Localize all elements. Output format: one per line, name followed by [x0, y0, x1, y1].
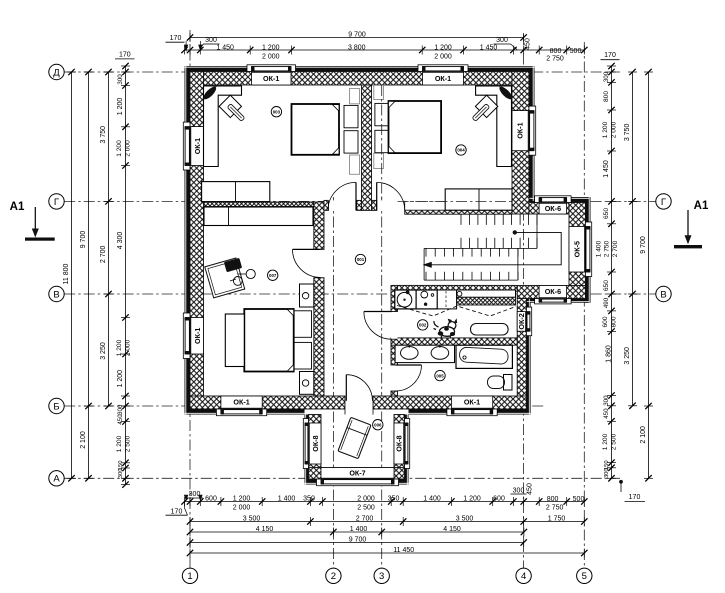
svg-text:4 150: 4 150 — [256, 526, 274, 533]
svg-text:4 300: 4 300 — [117, 232, 124, 250]
svg-text:1 450: 1 450 — [603, 160, 610, 178]
svg-text:650: 650 — [603, 280, 610, 291]
svg-text:2 750: 2 750 — [546, 56, 564, 63]
svg-text:А: А — [53, 474, 60, 485]
svg-text:2 700: 2 700 — [100, 245, 107, 263]
svg-text:2 000: 2 000 — [124, 339, 131, 356]
svg-text:3 750: 3 750 — [100, 126, 107, 144]
svg-text:007: 007 — [269, 273, 277, 278]
svg-text:2 000: 2 000 — [357, 496, 375, 503]
svg-text:170: 170 — [604, 52, 616, 59]
svg-text:500: 500 — [573, 496, 585, 503]
svg-text:600: 600 — [205, 496, 217, 503]
svg-text:ОК-1: ОК-1 — [516, 122, 525, 138]
svg-text:300: 300 — [604, 468, 610, 478]
svg-text:2 100: 2 100 — [640, 426, 647, 444]
svg-text:350: 350 — [388, 496, 400, 503]
svg-text:170: 170 — [119, 51, 131, 58]
svg-text:1 400: 1 400 — [595, 240, 602, 257]
svg-text:450: 450 — [117, 414, 124, 425]
svg-text:170: 170 — [170, 35, 182, 42]
svg-text:2 750: 2 750 — [546, 504, 564, 511]
svg-text:ОК-6: ОК-6 — [545, 287, 561, 296]
svg-text:Г: Г — [54, 197, 59, 208]
svg-text:2: 2 — [331, 571, 336, 582]
svg-text:9 700: 9 700 — [349, 537, 367, 544]
svg-text:А1: А1 — [694, 200, 709, 212]
svg-text:Д: Д — [53, 67, 60, 78]
svg-text:3: 3 — [379, 571, 384, 582]
svg-text:9 700: 9 700 — [348, 32, 366, 39]
svg-text:ОК-1: ОК-1 — [193, 328, 202, 344]
svg-text:300: 300 — [603, 395, 610, 406]
svg-text:1 400: 1 400 — [350, 526, 368, 533]
svg-text:2 000: 2 000 — [610, 121, 617, 138]
svg-text:3 750: 3 750 — [624, 124, 631, 142]
svg-text:4 150: 4 150 — [443, 526, 461, 533]
svg-text:11 800: 11 800 — [63, 263, 70, 284]
svg-text:1 200: 1 200 — [602, 121, 609, 138]
svg-text:А1: А1 — [10, 201, 25, 213]
svg-text:5: 5 — [582, 571, 587, 582]
svg-text:1 860: 1 860 — [606, 345, 613, 363]
svg-text:В: В — [660, 289, 666, 300]
svg-text:300: 300 — [117, 74, 124, 85]
svg-text:2 750: 2 750 — [604, 240, 611, 257]
svg-text:1 200: 1 200 — [116, 339, 123, 356]
svg-text:300: 300 — [496, 37, 508, 44]
svg-text:800: 800 — [550, 48, 562, 55]
svg-text:4: 4 — [521, 571, 526, 582]
svg-text:Г: Г — [661, 197, 666, 208]
svg-text:2 700: 2 700 — [612, 240, 619, 257]
svg-text:600: 600 — [602, 316, 609, 327]
svg-text:004: 004 — [457, 148, 465, 153]
svg-text:800: 800 — [603, 91, 610, 102]
svg-text:1 200: 1 200 — [116, 140, 123, 157]
svg-text:ОК-2: ОК-2 — [517, 313, 526, 329]
svg-text:ОК-1: ОК-1 — [263, 74, 279, 83]
svg-text:3 500: 3 500 — [243, 516, 261, 523]
svg-text:ОК-1: ОК-1 — [193, 138, 202, 154]
svg-text:2 700: 2 700 — [356, 516, 374, 523]
svg-text:11 450: 11 450 — [393, 547, 414, 554]
svg-text:1 200: 1 200 — [117, 370, 124, 388]
svg-text:003: 003 — [273, 109, 281, 114]
svg-text:2 000: 2 000 — [233, 504, 251, 511]
svg-text:300: 300 — [189, 491, 201, 498]
svg-text:В: В — [53, 289, 59, 300]
svg-text:3 250: 3 250 — [624, 347, 631, 365]
svg-text:1 200: 1 200 — [262, 44, 280, 51]
svg-text:ОК-8: ОК-8 — [311, 435, 320, 451]
svg-text:2 100: 2 100 — [80, 431, 87, 449]
svg-text:1 200: 1 200 — [602, 433, 609, 450]
svg-text:300: 300 — [603, 71, 610, 82]
svg-text:450: 450 — [527, 483, 534, 495]
svg-text:350: 350 — [303, 496, 315, 503]
svg-text:1: 1 — [187, 571, 192, 582]
svg-text:800: 800 — [547, 496, 559, 503]
svg-text:490: 490 — [603, 297, 610, 308]
svg-text:2 000: 2 000 — [124, 140, 131, 157]
svg-text:ОК-1: ОК-1 — [464, 398, 480, 407]
svg-text:2 000: 2 000 — [434, 54, 452, 61]
svg-text:ОК-5: ОК-5 — [572, 241, 581, 257]
svg-text:300: 300 — [513, 488, 525, 495]
svg-text:2 000: 2 000 — [262, 54, 280, 61]
svg-text:Б: Б — [53, 401, 59, 412]
svg-text:170: 170 — [171, 508, 183, 515]
svg-text:170: 170 — [629, 494, 641, 501]
svg-text:ОК-7: ОК-7 — [349, 469, 365, 478]
svg-text:ОК-8: ОК-8 — [395, 435, 404, 451]
svg-text:005: 005 — [436, 373, 444, 378]
svg-text:2 500: 2 500 — [124, 435, 131, 452]
svg-text:450: 450 — [525, 38, 532, 50]
svg-text:9 700: 9 700 — [640, 236, 647, 254]
svg-text:1 200: 1 200 — [434, 44, 452, 51]
svg-text:001: 001 — [357, 257, 365, 262]
svg-text:300: 300 — [117, 404, 124, 415]
svg-text:300: 300 — [205, 37, 217, 44]
svg-text:ОК-1: ОК-1 — [435, 74, 451, 83]
svg-text:2 500: 2 500 — [610, 433, 617, 450]
svg-text:800: 800 — [610, 316, 617, 327]
svg-text:1 450: 1 450 — [216, 44, 234, 51]
svg-text:1 200: 1 200 — [117, 98, 124, 116]
svg-text:ОК-6: ОК-6 — [545, 204, 561, 213]
svg-text:1 400: 1 400 — [278, 496, 296, 503]
svg-text:1 450: 1 450 — [480, 44, 498, 51]
svg-text:3 250: 3 250 — [100, 342, 107, 360]
svg-text:006: 006 — [374, 422, 382, 427]
svg-text:1 200: 1 200 — [116, 435, 123, 452]
svg-text:500: 500 — [570, 48, 582, 55]
svg-text:9 700: 9 700 — [80, 231, 87, 249]
svg-text:600: 600 — [493, 496, 505, 503]
svg-text:2 500: 2 500 — [357, 504, 375, 511]
svg-text:3 500: 3 500 — [456, 516, 474, 523]
svg-text:1 400: 1 400 — [423, 496, 441, 503]
svg-text:ОК-1: ОК-1 — [233, 398, 249, 407]
svg-text:1 200: 1 200 — [233, 496, 251, 503]
svg-text:650: 650 — [603, 208, 610, 219]
svg-text:300: 300 — [118, 469, 124, 479]
svg-text:1 750: 1 750 — [548, 516, 566, 523]
svg-text:002: 002 — [419, 323, 427, 328]
svg-text:1 200: 1 200 — [463, 496, 481, 503]
svg-text:450: 450 — [603, 408, 610, 419]
svg-text:3 800: 3 800 — [348, 44, 366, 51]
